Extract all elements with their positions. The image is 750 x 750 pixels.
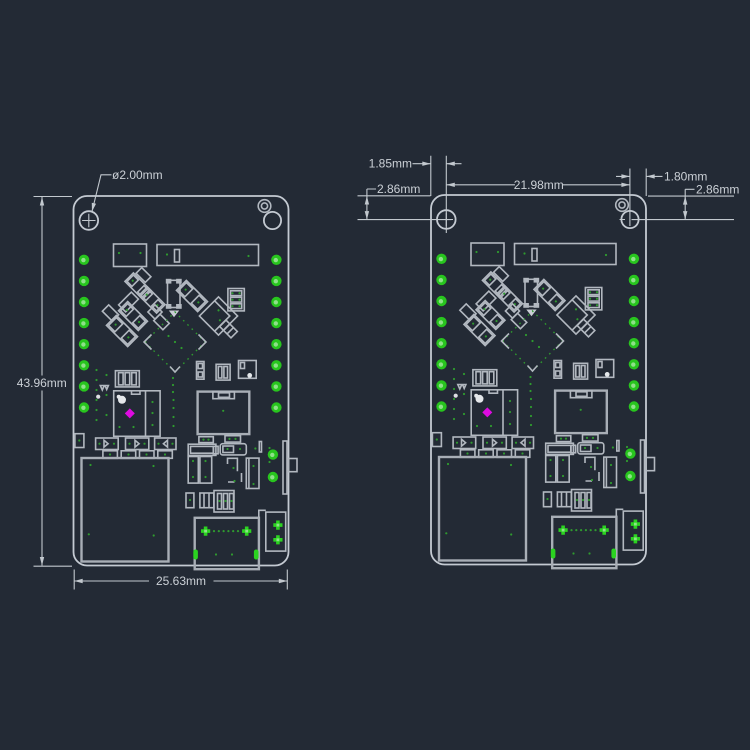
svg-text:2.86mm: 2.86mm (377, 182, 420, 196)
svg-text:2.86mm: 2.86mm (696, 182, 739, 196)
svg-text:21.98mm: 21.98mm (514, 178, 564, 192)
svg-text:25.63mm: 25.63mm (156, 574, 206, 588)
svg-text:ø2.00mm: ø2.00mm (112, 168, 163, 182)
svg-text:1.85mm: 1.85mm (369, 157, 412, 171)
svg-text:43.96mm: 43.96mm (17, 376, 67, 390)
svg-text:1.80mm: 1.80mm (664, 169, 707, 183)
